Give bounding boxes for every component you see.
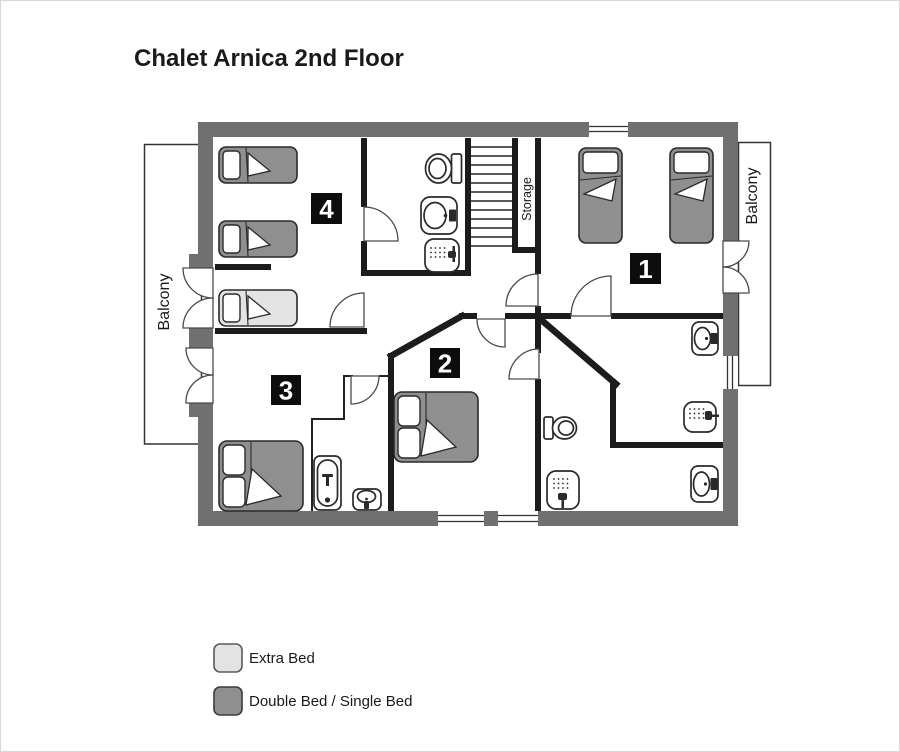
legend-label-standard-bed: Double Bed / Single Bed xyxy=(249,693,412,710)
room-1-badge: 1 xyxy=(630,253,661,284)
floorplan-svg: Chalet Arnica 2nd Floor Balcony Balcony xyxy=(1,1,899,751)
shower-icon xyxy=(684,402,719,432)
shower-icon xyxy=(425,239,459,272)
balcony-right-label: Balcony xyxy=(744,168,761,225)
legend-swatch-extra-bed xyxy=(214,644,242,672)
floorplan-page: Chalet Arnica 2nd Floor Balcony Balcony xyxy=(0,0,900,752)
door-room3 xyxy=(330,293,364,327)
sink-icon xyxy=(353,489,381,510)
room-3-number: 3 xyxy=(279,376,293,406)
door-balcony-left-upper-b xyxy=(183,298,213,328)
sink-icon xyxy=(421,197,457,234)
sink-icon xyxy=(692,322,718,355)
door-bathroom-center xyxy=(509,349,539,379)
door-room2 xyxy=(477,319,505,347)
diagonal-wall-right xyxy=(539,318,616,384)
page-title: Chalet Arnica 2nd Floor xyxy=(134,45,404,72)
window-top xyxy=(589,122,628,137)
door-room1 xyxy=(571,276,611,316)
room-4-number: 4 xyxy=(319,194,334,224)
double-bed xyxy=(219,441,303,511)
door-room4 xyxy=(364,207,398,241)
extra-bed xyxy=(219,290,297,326)
window-bottom-right xyxy=(498,511,538,526)
door-balcony-left-upper-a xyxy=(183,268,213,298)
legend: Extra Bed Double Bed / Single Bed xyxy=(214,644,412,715)
door-balcony-left-lower-a xyxy=(186,348,213,375)
room-2-badge: 2 xyxy=(430,348,460,379)
door-balcony-right-b xyxy=(723,267,749,293)
balcony-left-label: Balcony xyxy=(156,274,173,331)
door-room3-ensuite xyxy=(351,376,379,404)
room-4-badge: 4 xyxy=(311,193,342,224)
double-bed xyxy=(394,392,478,462)
single-bed xyxy=(219,221,297,257)
single-bed xyxy=(670,148,713,243)
toilet-icon xyxy=(426,154,462,183)
single-bed xyxy=(579,148,622,243)
legend-swatch-standard-bed xyxy=(214,687,242,715)
legend-label-extra-bed: Extra Bed xyxy=(249,650,315,667)
staircase xyxy=(471,147,512,246)
storage-label: Storage xyxy=(520,177,534,221)
balcony-right: Balcony xyxy=(739,143,771,386)
bathtub-icon xyxy=(314,456,341,510)
door-balcony-left-lower-b xyxy=(186,375,213,403)
sink-icon xyxy=(691,466,718,502)
toilet-icon xyxy=(544,417,577,439)
room-3-badge: 3 xyxy=(271,375,301,406)
room-1-number: 1 xyxy=(638,254,652,284)
door-balcony-right-a xyxy=(723,241,749,267)
window-bottom-left xyxy=(438,511,484,526)
door-hall xyxy=(506,274,538,306)
shower-icon xyxy=(547,471,579,509)
window-right xyxy=(723,356,738,389)
room-2-number: 2 xyxy=(438,349,452,379)
single-bed xyxy=(219,147,297,183)
